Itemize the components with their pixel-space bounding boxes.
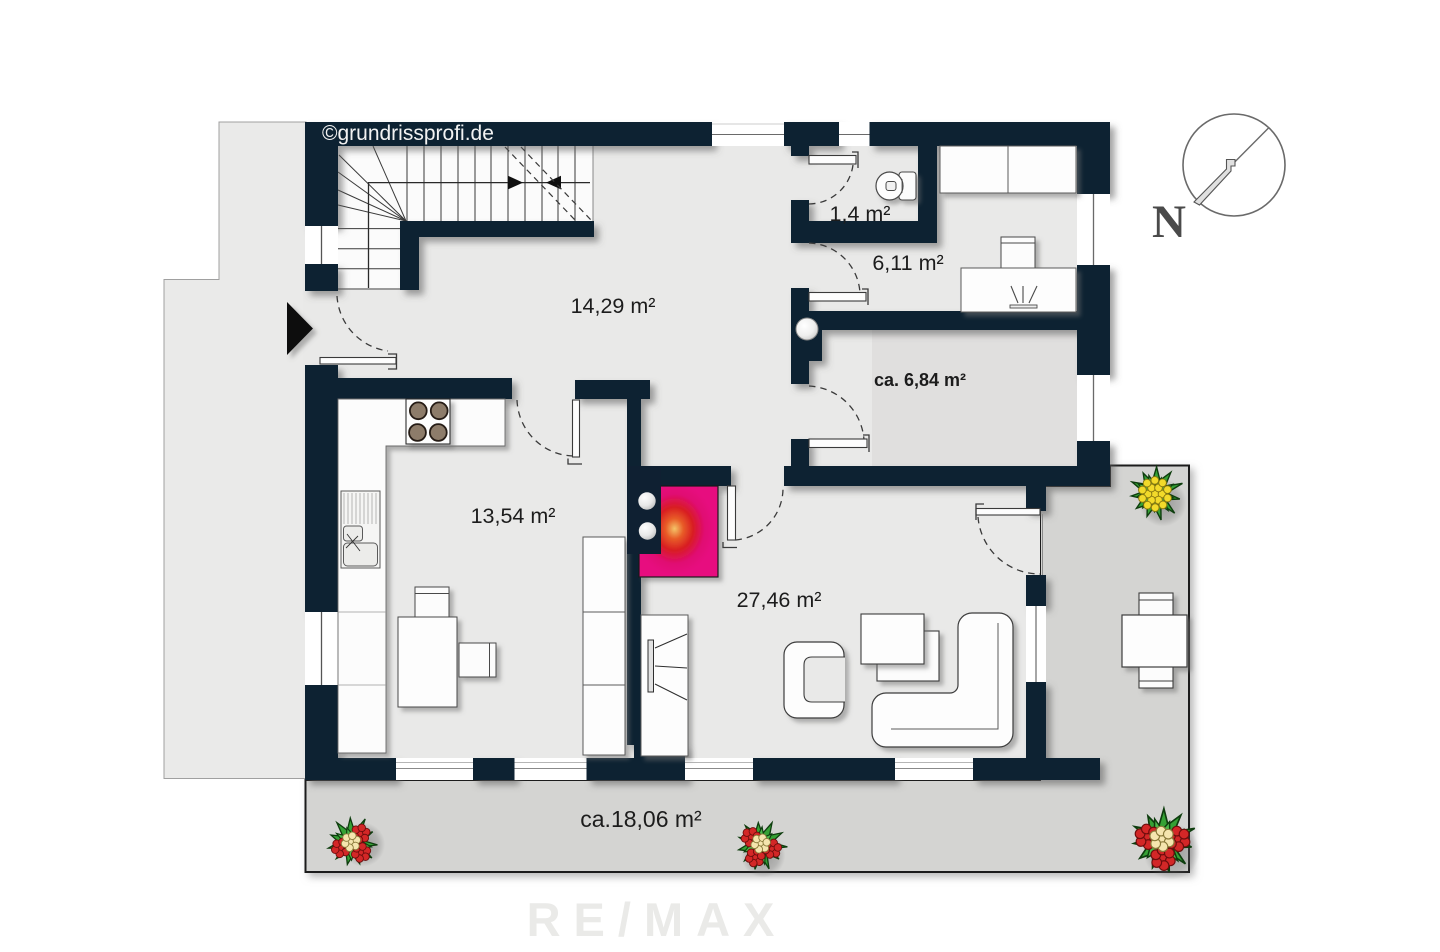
svg-text:1,4 m²: 1,4 m² xyxy=(830,202,891,226)
svg-text:ca.18,06 m²: ca.18,06 m² xyxy=(580,806,702,832)
svg-text:ca. 6,84 m²: ca. 6,84 m² xyxy=(874,370,966,390)
svg-text:27,46 m²: 27,46 m² xyxy=(737,588,822,612)
svg-text:©grundrissprofi.de: ©grundrissprofi.de xyxy=(322,122,494,145)
svg-text:6,11 m²: 6,11 m² xyxy=(872,251,943,275)
svg-text:RE/MAX: RE/MAX xyxy=(527,893,788,946)
svg-text:N: N xyxy=(1152,196,1186,248)
svg-text:14,29 m²: 14,29 m² xyxy=(571,294,656,318)
svg-text:13,54 m²: 13,54 m² xyxy=(471,504,556,528)
